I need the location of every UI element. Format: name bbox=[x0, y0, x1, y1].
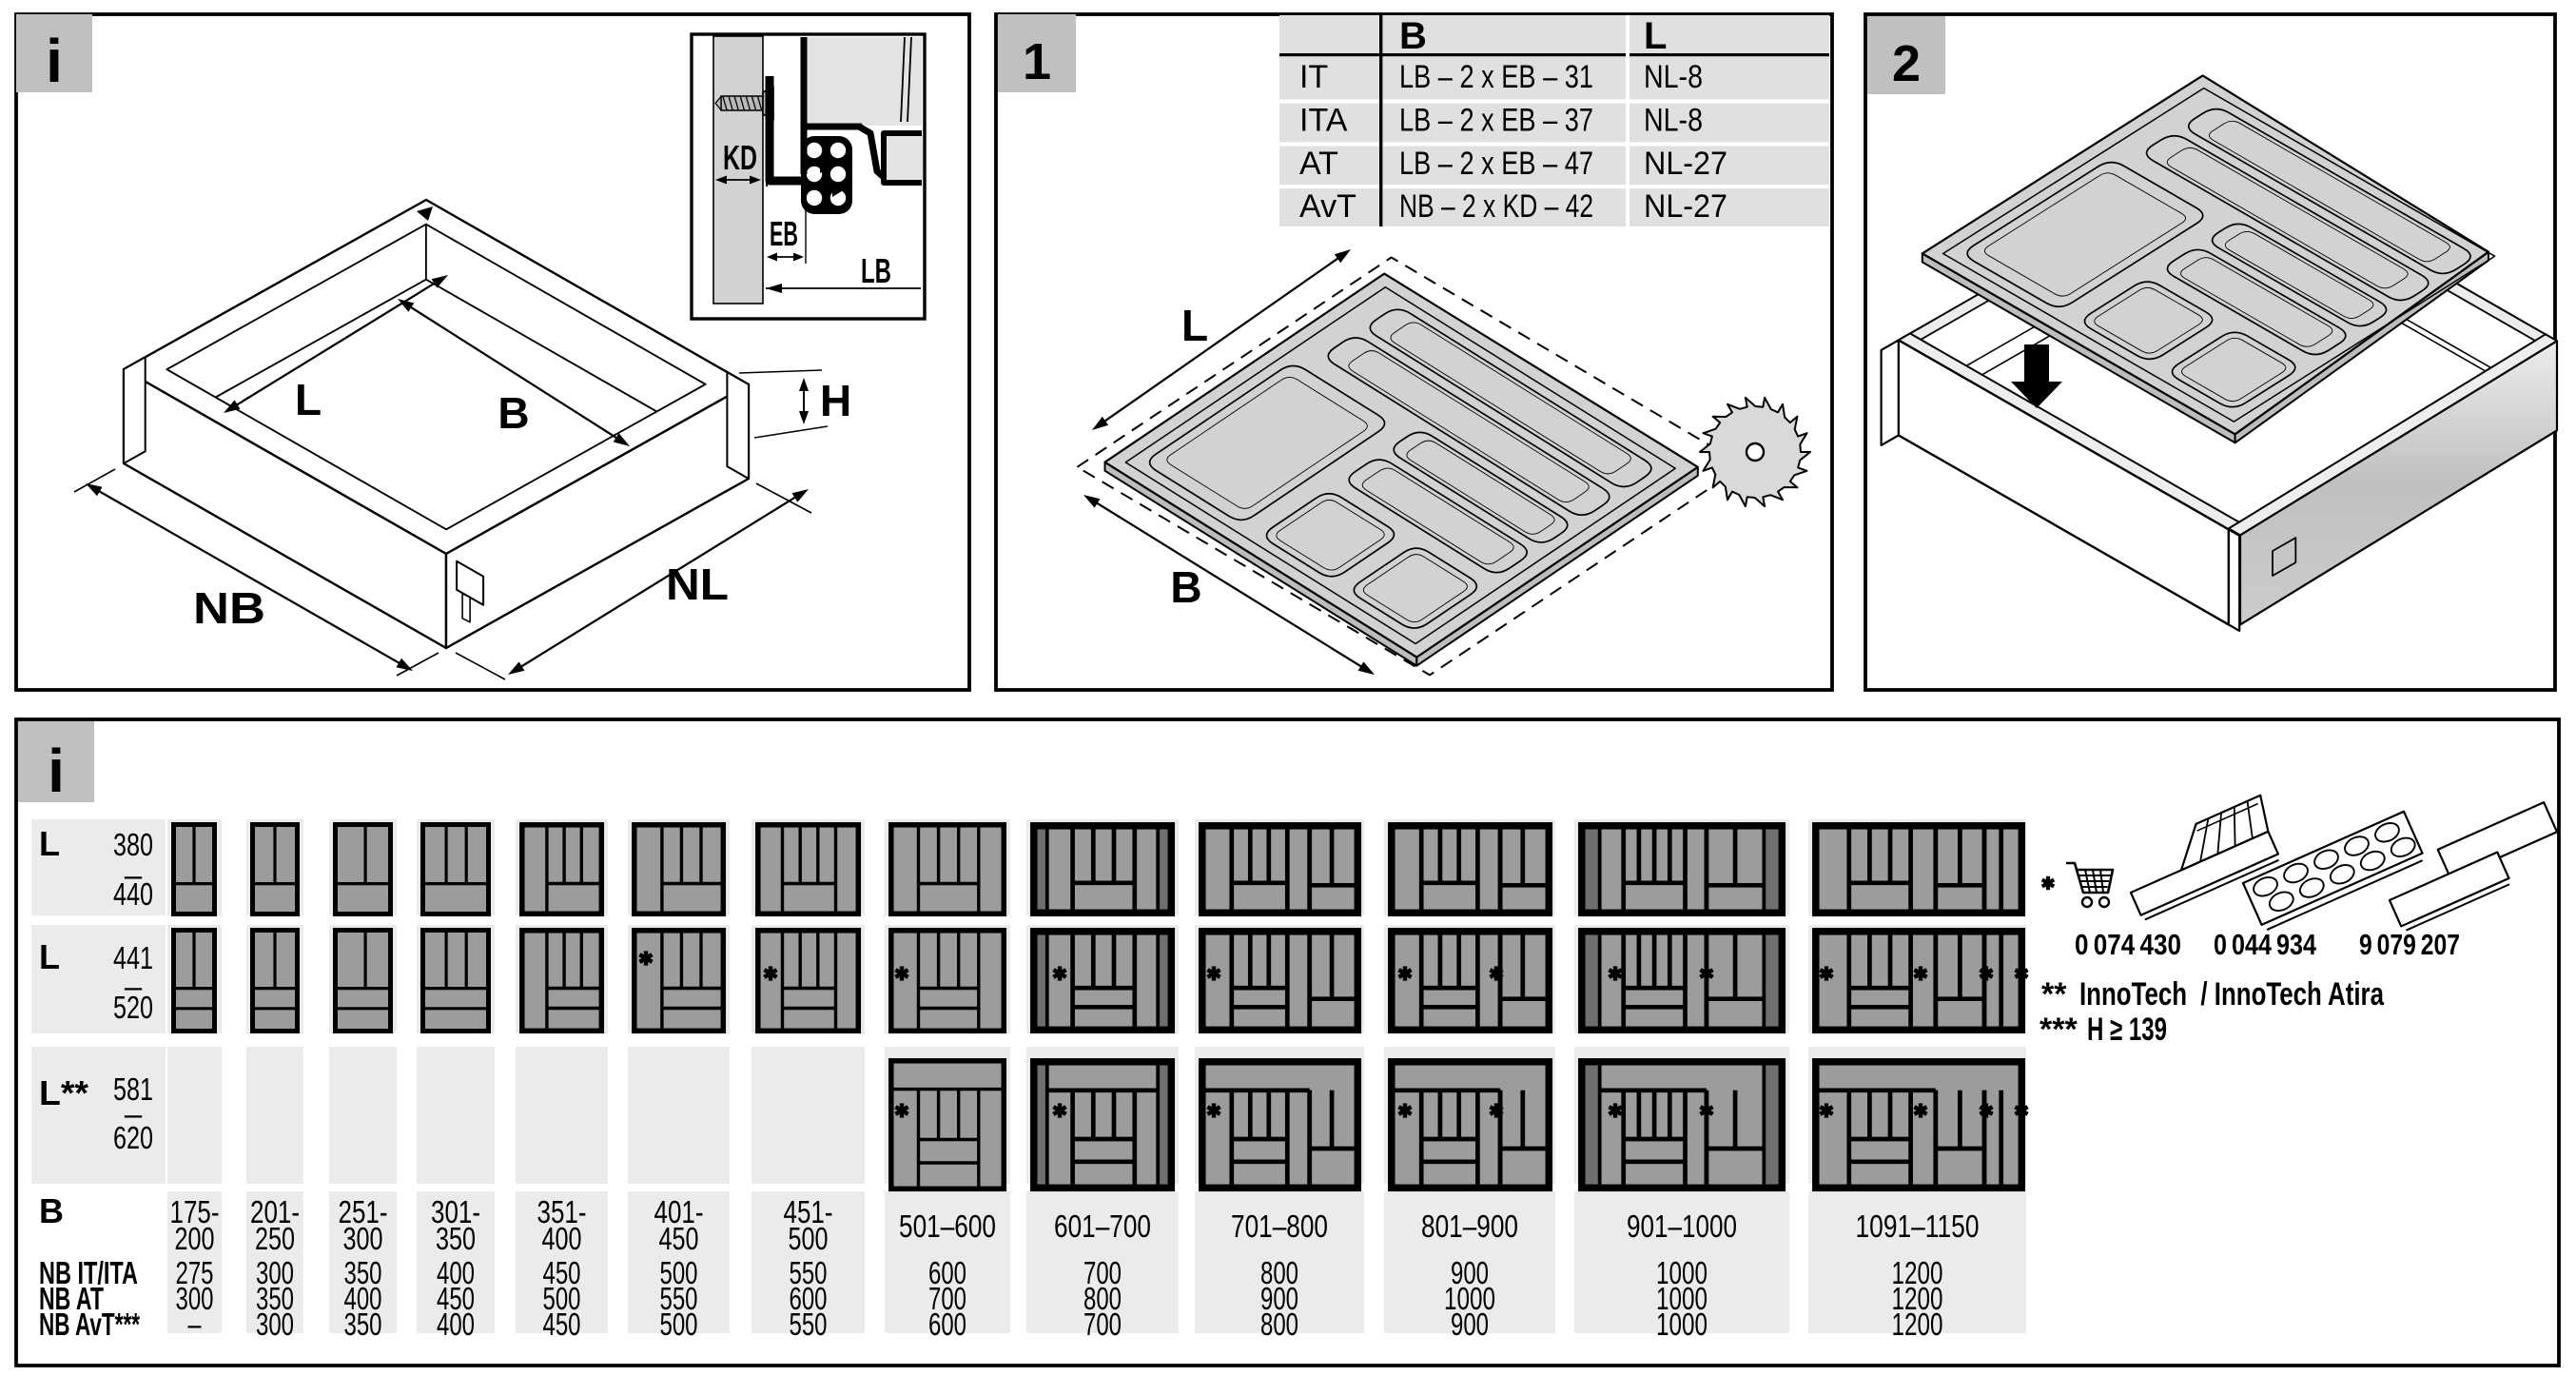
svg-text:601–700: 601–700 bbox=[1054, 1209, 1151, 1244]
svg-text:250: 250 bbox=[255, 1221, 295, 1256]
svg-text:700: 700 bbox=[1083, 1307, 1122, 1342]
svg-text:450: 450 bbox=[543, 1307, 581, 1342]
svg-text:9 079 207: 9 079 207 bbox=[2359, 928, 2460, 961]
svg-text:1091–1150: 1091–1150 bbox=[1856, 1209, 1980, 1244]
svg-text:L: L bbox=[39, 824, 60, 863]
svg-text:***: *** bbox=[2039, 1012, 2078, 1048]
svg-text:KD: KD bbox=[723, 138, 757, 177]
svg-text:0 074 430: 0 074 430 bbox=[2075, 928, 2181, 961]
svg-text:LB – 2 x EB – 37: LB – 2 x EB – 37 bbox=[1399, 102, 1593, 138]
svg-text:900: 900 bbox=[1451, 1307, 1489, 1342]
svg-text:AT: AT bbox=[1299, 146, 1338, 182]
svg-text:L: L bbox=[295, 375, 322, 424]
svg-text:2: 2 bbox=[1892, 35, 1921, 92]
svg-text:501–600: 501–600 bbox=[899, 1209, 996, 1244]
svg-text:NL-8: NL-8 bbox=[1644, 59, 1703, 95]
svg-text:IT: IT bbox=[1299, 59, 1328, 95]
svg-text:300: 300 bbox=[256, 1307, 294, 1342]
svg-text:0 044 934: 0 044 934 bbox=[2214, 928, 2317, 961]
svg-text:300: 300 bbox=[343, 1221, 383, 1256]
svg-text:500: 500 bbox=[789, 1221, 829, 1256]
svg-text:440: 440 bbox=[113, 876, 153, 912]
svg-text:NL-27: NL-27 bbox=[1644, 188, 1727, 225]
svg-text:801–900: 801–900 bbox=[1421, 1209, 1518, 1244]
svg-text:L**: L** bbox=[39, 1073, 88, 1112]
svg-text:500: 500 bbox=[660, 1307, 698, 1342]
svg-text:400: 400 bbox=[542, 1221, 582, 1256]
svg-text:600: 600 bbox=[928, 1307, 966, 1342]
svg-text:i: i bbox=[46, 27, 63, 95]
svg-text:450: 450 bbox=[659, 1221, 699, 1256]
svg-text:B: B bbox=[498, 388, 529, 438]
svg-text:NL: NL bbox=[666, 560, 729, 609]
svg-text:**: ** bbox=[2041, 976, 2067, 1012]
svg-text:L: L bbox=[39, 937, 60, 976]
svg-text:901–1000: 901–1000 bbox=[1627, 1209, 1737, 1244]
svg-text:LB – 2 x EB – 31: LB – 2 x EB – 31 bbox=[1399, 59, 1593, 95]
svg-text:B: B bbox=[1170, 562, 1201, 612]
svg-text:1200: 1200 bbox=[1892, 1307, 1943, 1342]
svg-text:701–800: 701–800 bbox=[1231, 1209, 1328, 1244]
svg-text:NB: NB bbox=[193, 583, 265, 633]
svg-text:InnoTech / InnoTech Atira: InnoTech / InnoTech Atira bbox=[2079, 976, 2385, 1012]
svg-text:1000: 1000 bbox=[1656, 1307, 1708, 1342]
svg-text:–: – bbox=[188, 1307, 202, 1342]
svg-text:800: 800 bbox=[1260, 1307, 1298, 1342]
svg-text:H ≥ 139: H ≥ 139 bbox=[2087, 1012, 2167, 1048]
svg-text:AvT: AvT bbox=[1299, 188, 1356, 225]
svg-text:350: 350 bbox=[436, 1221, 476, 1256]
svg-text:LB: LB bbox=[861, 251, 891, 290]
svg-text:i: i bbox=[48, 737, 65, 805]
svg-text:550: 550 bbox=[790, 1307, 828, 1342]
svg-text:620: 620 bbox=[113, 1120, 153, 1155]
svg-text:LB – 2 x EB – 47: LB – 2 x EB – 47 bbox=[1399, 146, 1593, 182]
svg-text:ITA: ITA bbox=[1299, 102, 1348, 138]
svg-text:NL-8: NL-8 bbox=[1644, 102, 1703, 138]
svg-text:NB AvT***: NB AvT*** bbox=[39, 1307, 140, 1342]
svg-text:350: 350 bbox=[344, 1307, 382, 1342]
svg-text:L: L bbox=[1644, 15, 1667, 57]
svg-text:NL-27: NL-27 bbox=[1644, 146, 1727, 182]
svg-text:NB – 2 x KD – 42: NB – 2 x KD – 42 bbox=[1399, 188, 1593, 225]
svg-text:200: 200 bbox=[175, 1221, 215, 1256]
svg-text:1: 1 bbox=[1023, 33, 1051, 90]
svg-text:L: L bbox=[1181, 301, 1208, 350]
svg-text:EB: EB bbox=[770, 214, 798, 253]
svg-text:400: 400 bbox=[437, 1307, 475, 1342]
svg-text:520: 520 bbox=[113, 990, 153, 1025]
svg-text:B: B bbox=[39, 1191, 64, 1230]
svg-text:B: B bbox=[1399, 15, 1427, 57]
svg-text:H: H bbox=[820, 376, 851, 425]
